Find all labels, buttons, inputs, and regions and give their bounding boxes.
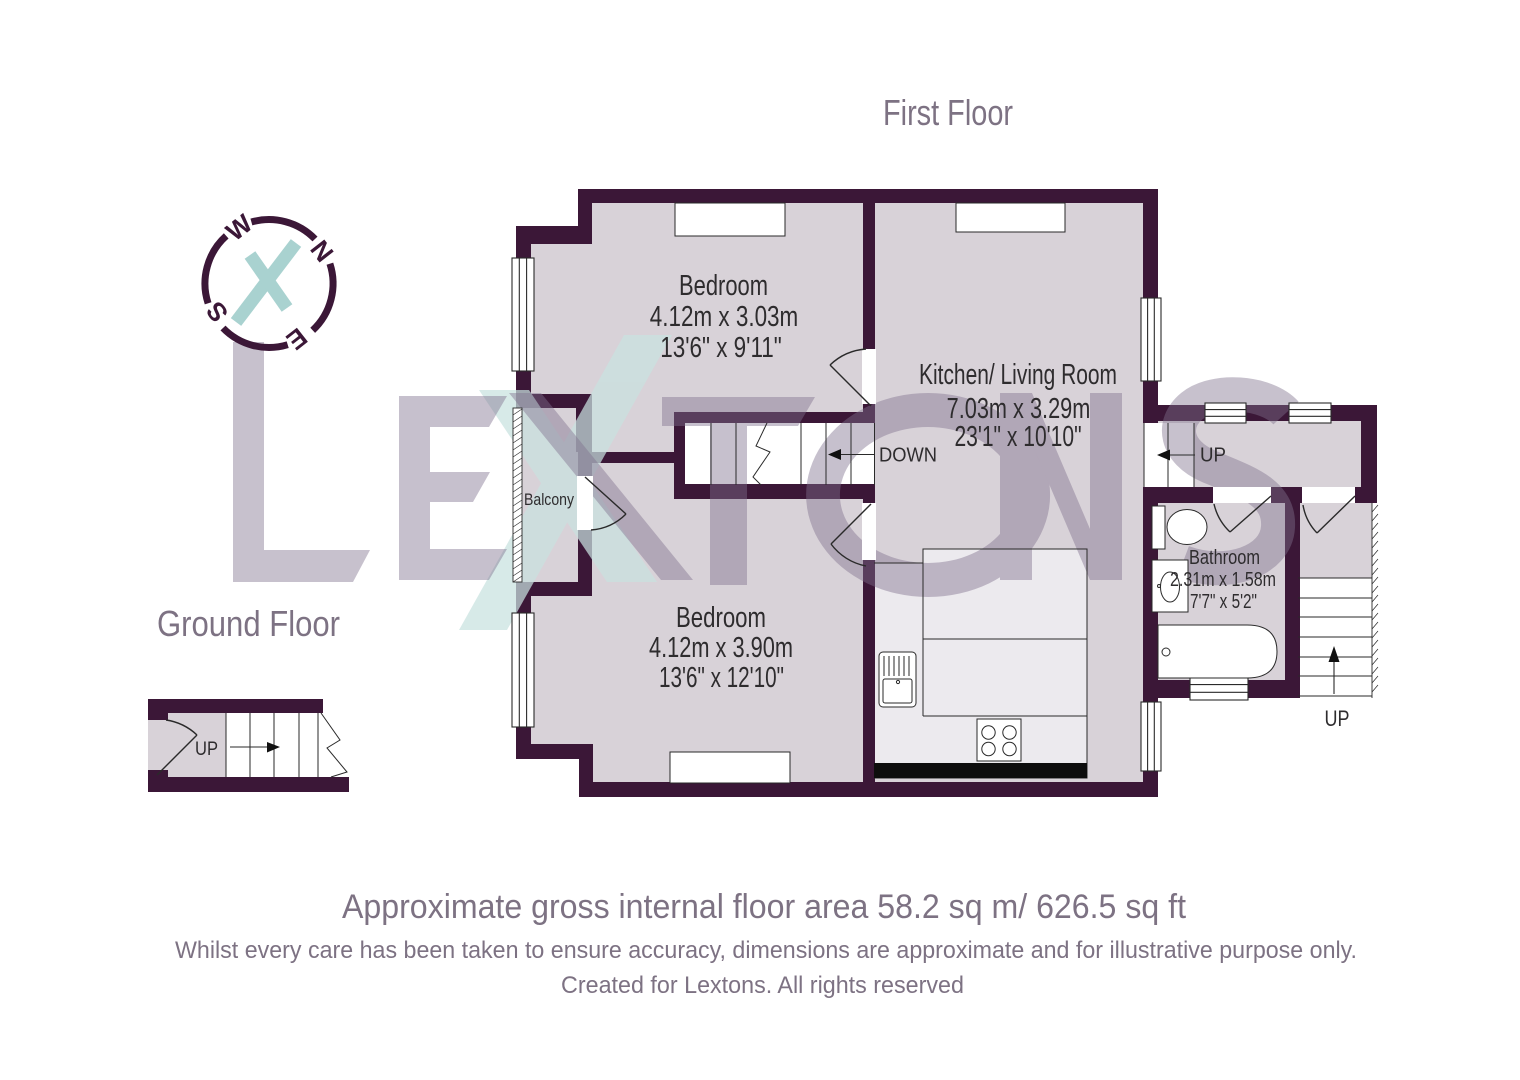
svg-text:First Floor: First Floor — [883, 92, 1013, 133]
svg-text:4.12m x 3.03m: 4.12m x 3.03m — [650, 301, 799, 333]
svg-text:UP: UP — [1325, 706, 1350, 731]
svg-text:Created for Lextons. All right: Created for Lextons. All rights reserved — [561, 972, 964, 999]
svg-text:23'1" x 10'10": 23'1" x 10'10" — [954, 421, 1081, 453]
svg-text:Bathroom: Bathroom — [1189, 547, 1260, 569]
svg-text:13'6" x 12'10": 13'6" x 12'10" — [659, 662, 784, 694]
svg-text:Bedroom: Bedroom — [676, 602, 766, 634]
svg-text:Approximate gross internal flo: Approximate gross internal floor area 58… — [342, 888, 1187, 926]
svg-text:UP: UP — [195, 739, 218, 760]
svg-text:Bedroom: Bedroom — [679, 270, 768, 302]
svg-text:DOWN: DOWN — [879, 445, 937, 467]
svg-text:4.12m x 3.90m: 4.12m x 3.90m — [649, 632, 793, 664]
svg-text:13'6" x 9'11": 13'6" x 9'11" — [660, 332, 782, 364]
svg-text:Ground Floor: Ground Floor — [157, 603, 340, 644]
svg-text:Whilst every care has been tak: Whilst every care has been taken to ensu… — [175, 937, 1357, 964]
svg-text:2.31m x 1.58m: 2.31m x 1.58m — [1170, 569, 1276, 591]
svg-text:Balcony: Balcony — [524, 490, 574, 509]
svg-text:UP: UP — [1200, 445, 1226, 467]
svg-text:7'7" x 5'2": 7'7" x 5'2" — [1190, 591, 1257, 613]
svg-text:Kitchen/ Living Room: Kitchen/ Living Room — [919, 359, 1117, 391]
